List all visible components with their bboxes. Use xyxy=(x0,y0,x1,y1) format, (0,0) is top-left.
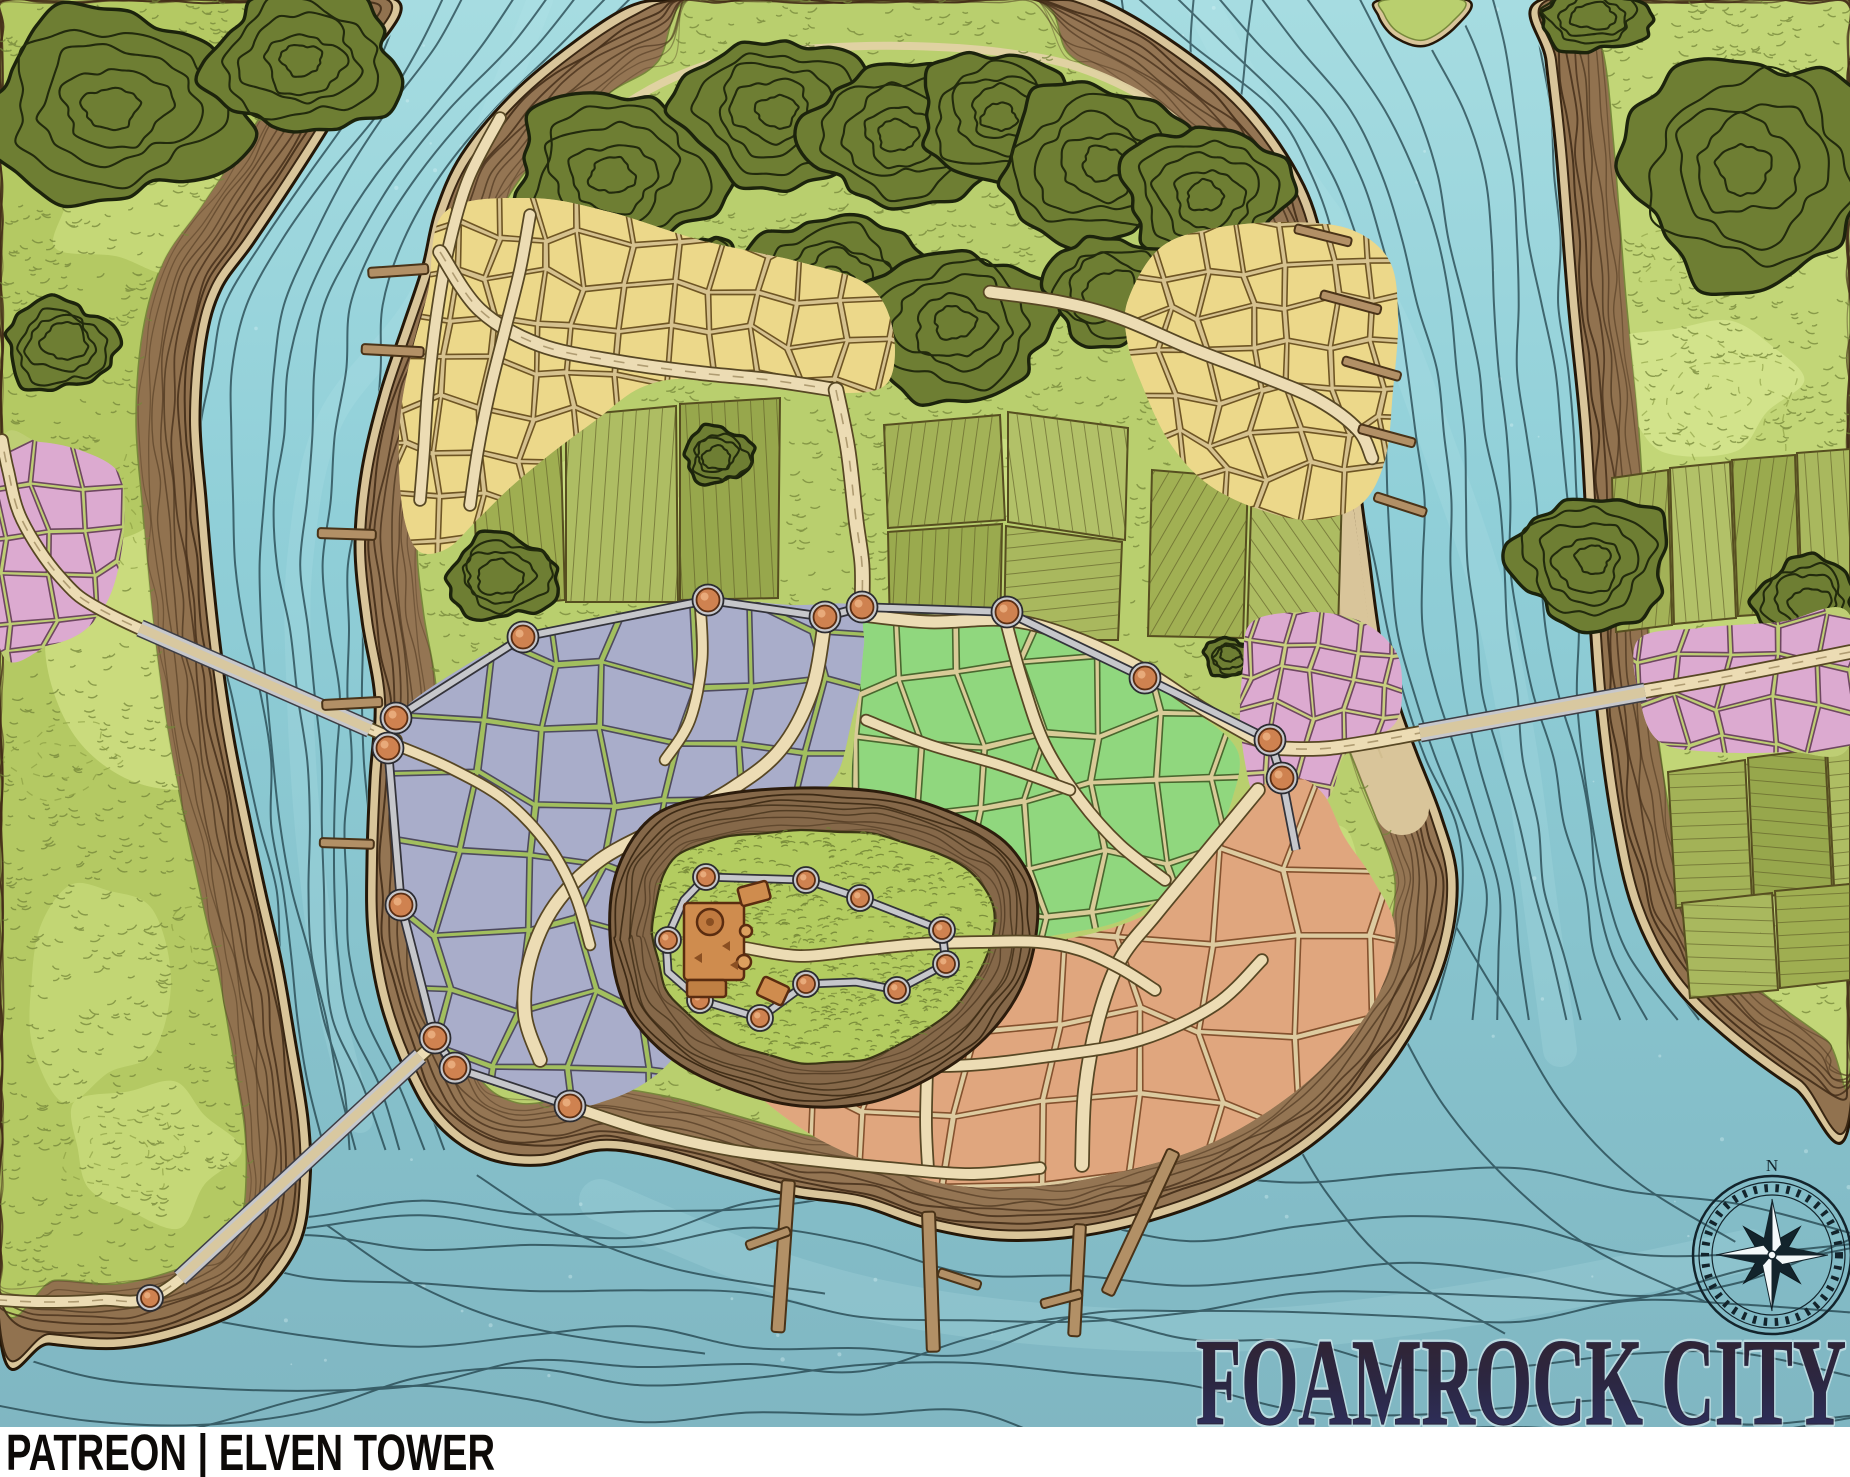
svg-text:N: N xyxy=(1766,1156,1778,1175)
svg-text:PATREON | ELVEN TOWER: PATREON | ELVEN TOWER xyxy=(6,1424,495,1477)
